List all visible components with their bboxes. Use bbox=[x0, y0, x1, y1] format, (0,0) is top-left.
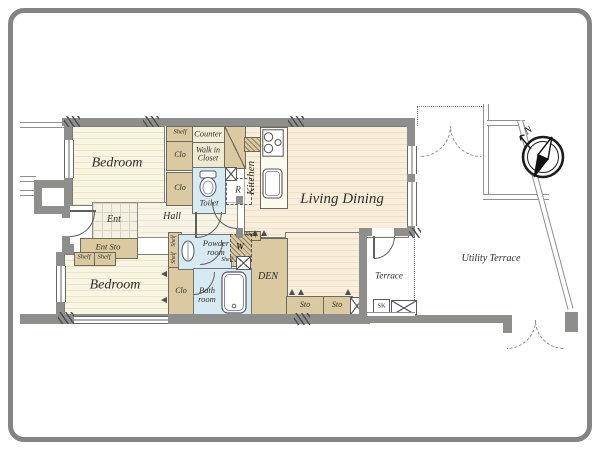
wall-hatch-1 bbox=[64, 116, 80, 127]
ent-sto-label: Ent Sto bbox=[96, 243, 121, 252]
shelf-bb-2-label: Shelf bbox=[98, 255, 111, 262]
vent-box-toilet bbox=[225, 167, 237, 181]
wall-hatch-2 bbox=[143, 116, 159, 127]
shelf-vertical-2-label: Shelf bbox=[171, 252, 177, 264]
window-bedroom-top-left bbox=[64, 140, 74, 178]
sto-2-label: Sto bbox=[332, 301, 342, 309]
window-living-right-2 bbox=[407, 182, 417, 226]
kitchen-sink-icon bbox=[262, 168, 283, 199]
floor-plan: SK bbox=[0, 0, 600, 450]
pivot-mark-clo-2 bbox=[161, 297, 167, 303]
sto-1-label: Sto bbox=[300, 301, 310, 309]
tall-cabinet bbox=[224, 126, 246, 169]
hall-label: Hall bbox=[163, 212, 181, 223]
kitchen-label: Kitchen bbox=[246, 161, 258, 195]
north-label: N bbox=[521, 126, 535, 138]
shelf-bath-label: Shelf bbox=[221, 257, 233, 263]
vent-box-bath bbox=[236, 256, 251, 270]
outline-top-left bbox=[20, 122, 66, 128]
pivot-mark-sto-3 bbox=[345, 289, 351, 295]
toilet-icon bbox=[196, 170, 220, 198]
wall-terrace-side bbox=[359, 228, 367, 316]
terrace-bottom-line bbox=[367, 312, 415, 317]
toilet-label: Toilet bbox=[199, 199, 218, 208]
clo-top-1-label: Clo bbox=[174, 151, 186, 159]
walk-in-closet-label: Walk in Closet bbox=[191, 147, 225, 164]
clo-bottom-label: Clo bbox=[175, 287, 187, 295]
bedroom-top-label: Bedroom bbox=[92, 157, 143, 172]
compass: N bbox=[514, 126, 572, 184]
pivot-mark-sto-1 bbox=[289, 289, 295, 295]
wall-hatch-6 bbox=[409, 228, 421, 238]
pivot-mark-den-2 bbox=[261, 230, 267, 236]
utility-terrace-label: Utility Terrace bbox=[462, 254, 521, 265]
window-bedroom-bottom-south bbox=[74, 316, 168, 324]
shelf-vertical-1-label: Shelf bbox=[171, 235, 177, 247]
utility-terrace-dotted-left-upper bbox=[417, 106, 418, 126]
slop-sink-label: SK bbox=[377, 304, 385, 311]
shelf-bb-1-label: Shelf bbox=[78, 255, 91, 262]
window-bedroom-bottom-left bbox=[56, 266, 66, 302]
pivot-mark-sto-2 bbox=[298, 289, 304, 295]
terrace-door-opening bbox=[372, 228, 394, 236]
refrigerator-label: R bbox=[235, 185, 241, 194]
counter-label: Counter bbox=[194, 130, 222, 139]
window-living-right-1 bbox=[407, 146, 417, 174]
wall-ent-stub-top bbox=[62, 206, 70, 218]
living-dining-label: Living Dining bbox=[300, 192, 384, 208]
powder-room-label: Powder room bbox=[195, 239, 237, 257]
bathtub-icon bbox=[221, 271, 247, 314]
shelf-top-label: Shelf bbox=[174, 130, 187, 137]
den-label: DEN bbox=[258, 272, 278, 283]
terrace-label: Terrace bbox=[375, 271, 403, 280]
outline-right-vertical bbox=[483, 104, 489, 198]
ent-label: Ent bbox=[107, 215, 121, 226]
utility-terrace-dotted-top bbox=[417, 106, 484, 107]
clo-top-2-label: Clo bbox=[174, 184, 186, 192]
wall-hatch-4 bbox=[58, 312, 74, 324]
bath-room-label: Bath room bbox=[191, 286, 223, 304]
wall-hall-ld-stub-bottom bbox=[236, 228, 243, 238]
stove-icon bbox=[262, 129, 284, 157]
shelf-above-washer-label: Shelf bbox=[245, 232, 257, 238]
wall-hatch-3 bbox=[288, 116, 304, 127]
washbasin-icon bbox=[181, 240, 195, 262]
wall-stub-door-right bbox=[565, 312, 578, 332]
bedroom-bottom-label: Bedroom bbox=[90, 279, 141, 294]
wall-hall-ld-stub-top bbox=[236, 196, 243, 204]
wall-top bbox=[62, 118, 415, 126]
pivot-mark-clo-1 bbox=[161, 271, 167, 277]
washer-label: W bbox=[236, 242, 244, 251]
wall-hatch-5 bbox=[294, 313, 310, 325]
